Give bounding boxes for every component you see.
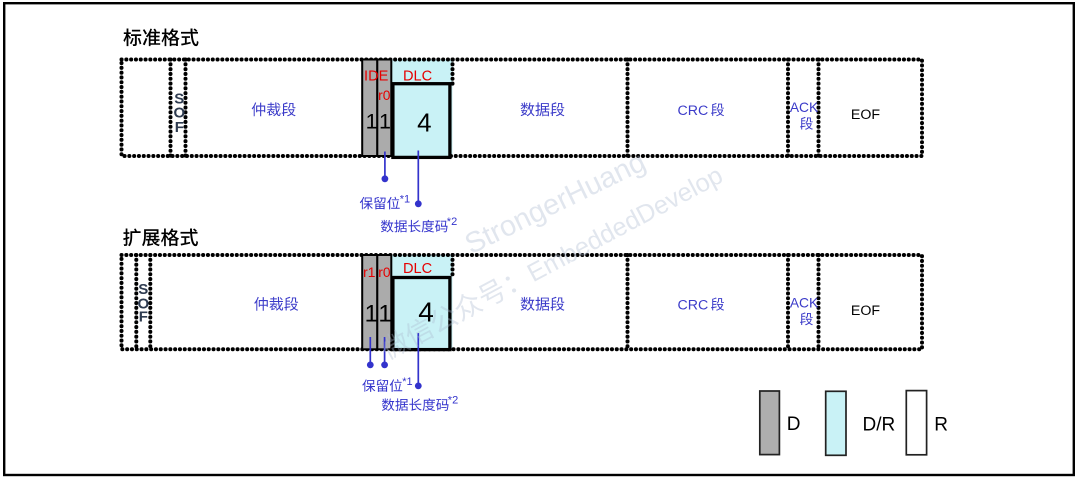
svg-text:CRC: CRC — [678, 103, 709, 119]
svg-text:F: F — [175, 119, 184, 136]
svg-text:D/R: D/R — [863, 415, 896, 436]
svg-text:1: 1 — [378, 300, 391, 327]
svg-text:r0: r0 — [378, 265, 391, 280]
svg-text:*2: *2 — [447, 216, 457, 228]
svg-text:EOF: EOF — [851, 303, 880, 319]
svg-text:4: 4 — [417, 108, 431, 138]
svg-text:IDE: IDE — [364, 69, 389, 85]
svg-text:EOF: EOF — [851, 107, 880, 123]
svg-text:*2: *2 — [448, 395, 458, 407]
svg-text:r0: r0 — [378, 88, 391, 103]
svg-text:1: 1 — [366, 110, 378, 134]
svg-text:1: 1 — [379, 110, 391, 134]
svg-text:CRC: CRC — [678, 298, 709, 314]
svg-text:ACK: ACK — [790, 100, 819, 115]
svg-text:1: 1 — [365, 300, 378, 327]
svg-text:DLC: DLC — [403, 261, 432, 277]
svg-text:*1: *1 — [402, 376, 412, 388]
svg-text:ACK: ACK — [790, 296, 819, 311]
svg-text:*1: *1 — [400, 194, 410, 206]
svg-text:D: D — [787, 414, 801, 435]
svg-text:F: F — [139, 309, 148, 326]
svg-text:r1: r1 — [363, 265, 375, 280]
svg-text:DLC: DLC — [403, 69, 432, 85]
svg-text:R: R — [934, 415, 948, 436]
